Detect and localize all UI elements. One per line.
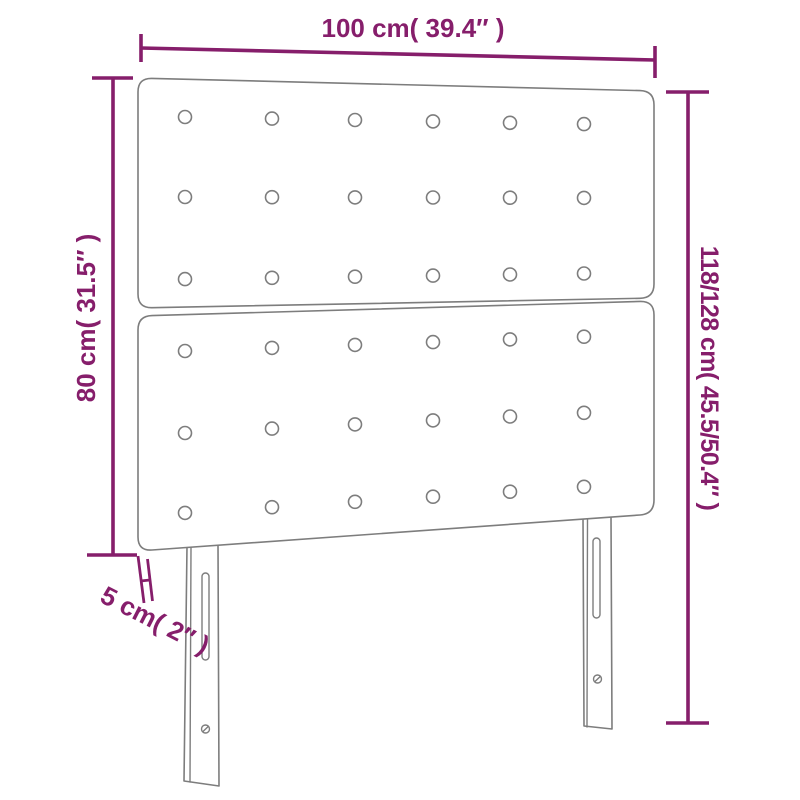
tufting-button: [179, 273, 192, 286]
left-leg-edge-line: [190, 547, 191, 782]
tufting-button: [427, 490, 440, 503]
tufting-button: [427, 336, 440, 349]
tufting-button: [504, 116, 517, 129]
tufting-button: [179, 191, 192, 204]
tufting-button: [504, 268, 517, 281]
headboard-dimension-diagram: 100 cm( 39.4″ ) 80 cm( 31.5″ ) 118/128 c…: [0, 0, 800, 800]
tufting-button: [266, 501, 279, 514]
right-leg-edge-line: [587, 518, 588, 727]
tufting-button: [427, 414, 440, 427]
tufting-button: [349, 495, 362, 508]
tufting-button: [266, 271, 279, 284]
tufting-button: [266, 422, 279, 435]
tufting-button: [266, 191, 279, 204]
tufting-button: [349, 114, 362, 127]
headboard-lower-panel: [138, 301, 654, 550]
tufting-button: [349, 191, 362, 204]
tufting-button: [578, 118, 591, 131]
total-height-dimension-label: 118/128 cm( 45.5/50.4″ ): [695, 246, 723, 511]
tufting-button: [349, 338, 362, 351]
diagram-canvas: 100 cm( 39.4″ ) 80 cm( 31.5″ ) 118/128 c…: [0, 0, 800, 800]
tufting-button: [266, 112, 279, 125]
tufting-button: [504, 410, 517, 423]
tufting-button: [427, 191, 440, 204]
tufting-button: [578, 480, 591, 493]
tufting-button: [578, 267, 591, 280]
width-dimension-line: [141, 48, 655, 60]
left-leg: [184, 544, 219, 786]
width-dimension-label: 100 cm( 39.4″ ): [321, 13, 504, 43]
thickness-dimension-line: [141, 580, 151, 581]
tufting-button: [427, 269, 440, 282]
tufting-button: [179, 345, 192, 358]
width-dimension: 100 cm( 39.4″ ): [141, 13, 655, 78]
tufting-button: [179, 111, 192, 124]
tufting-button: [179, 506, 192, 519]
tufting-button: [349, 270, 362, 283]
tufting-button: [349, 418, 362, 431]
tufting-button: [578, 406, 591, 419]
tufting-button: [504, 485, 517, 498]
right-leg: [583, 516, 612, 729]
panel-height-dimension: 80 cm( 31.5″ ): [71, 78, 137, 555]
headboard-upper-panel: [138, 78, 654, 307]
tufting-button: [427, 115, 440, 128]
tufting-button: [578, 191, 591, 204]
total-height-dimension: 118/128 cm( 45.5/50.4″ ): [666, 92, 723, 723]
tufting-button: [504, 333, 517, 346]
panel-height-dimension-label: 80 cm( 31.5″ ): [71, 234, 101, 403]
tufting-button: [504, 191, 517, 204]
tufting-button: [179, 427, 192, 440]
tufting-button: [578, 330, 591, 343]
tufting-button: [266, 341, 279, 354]
